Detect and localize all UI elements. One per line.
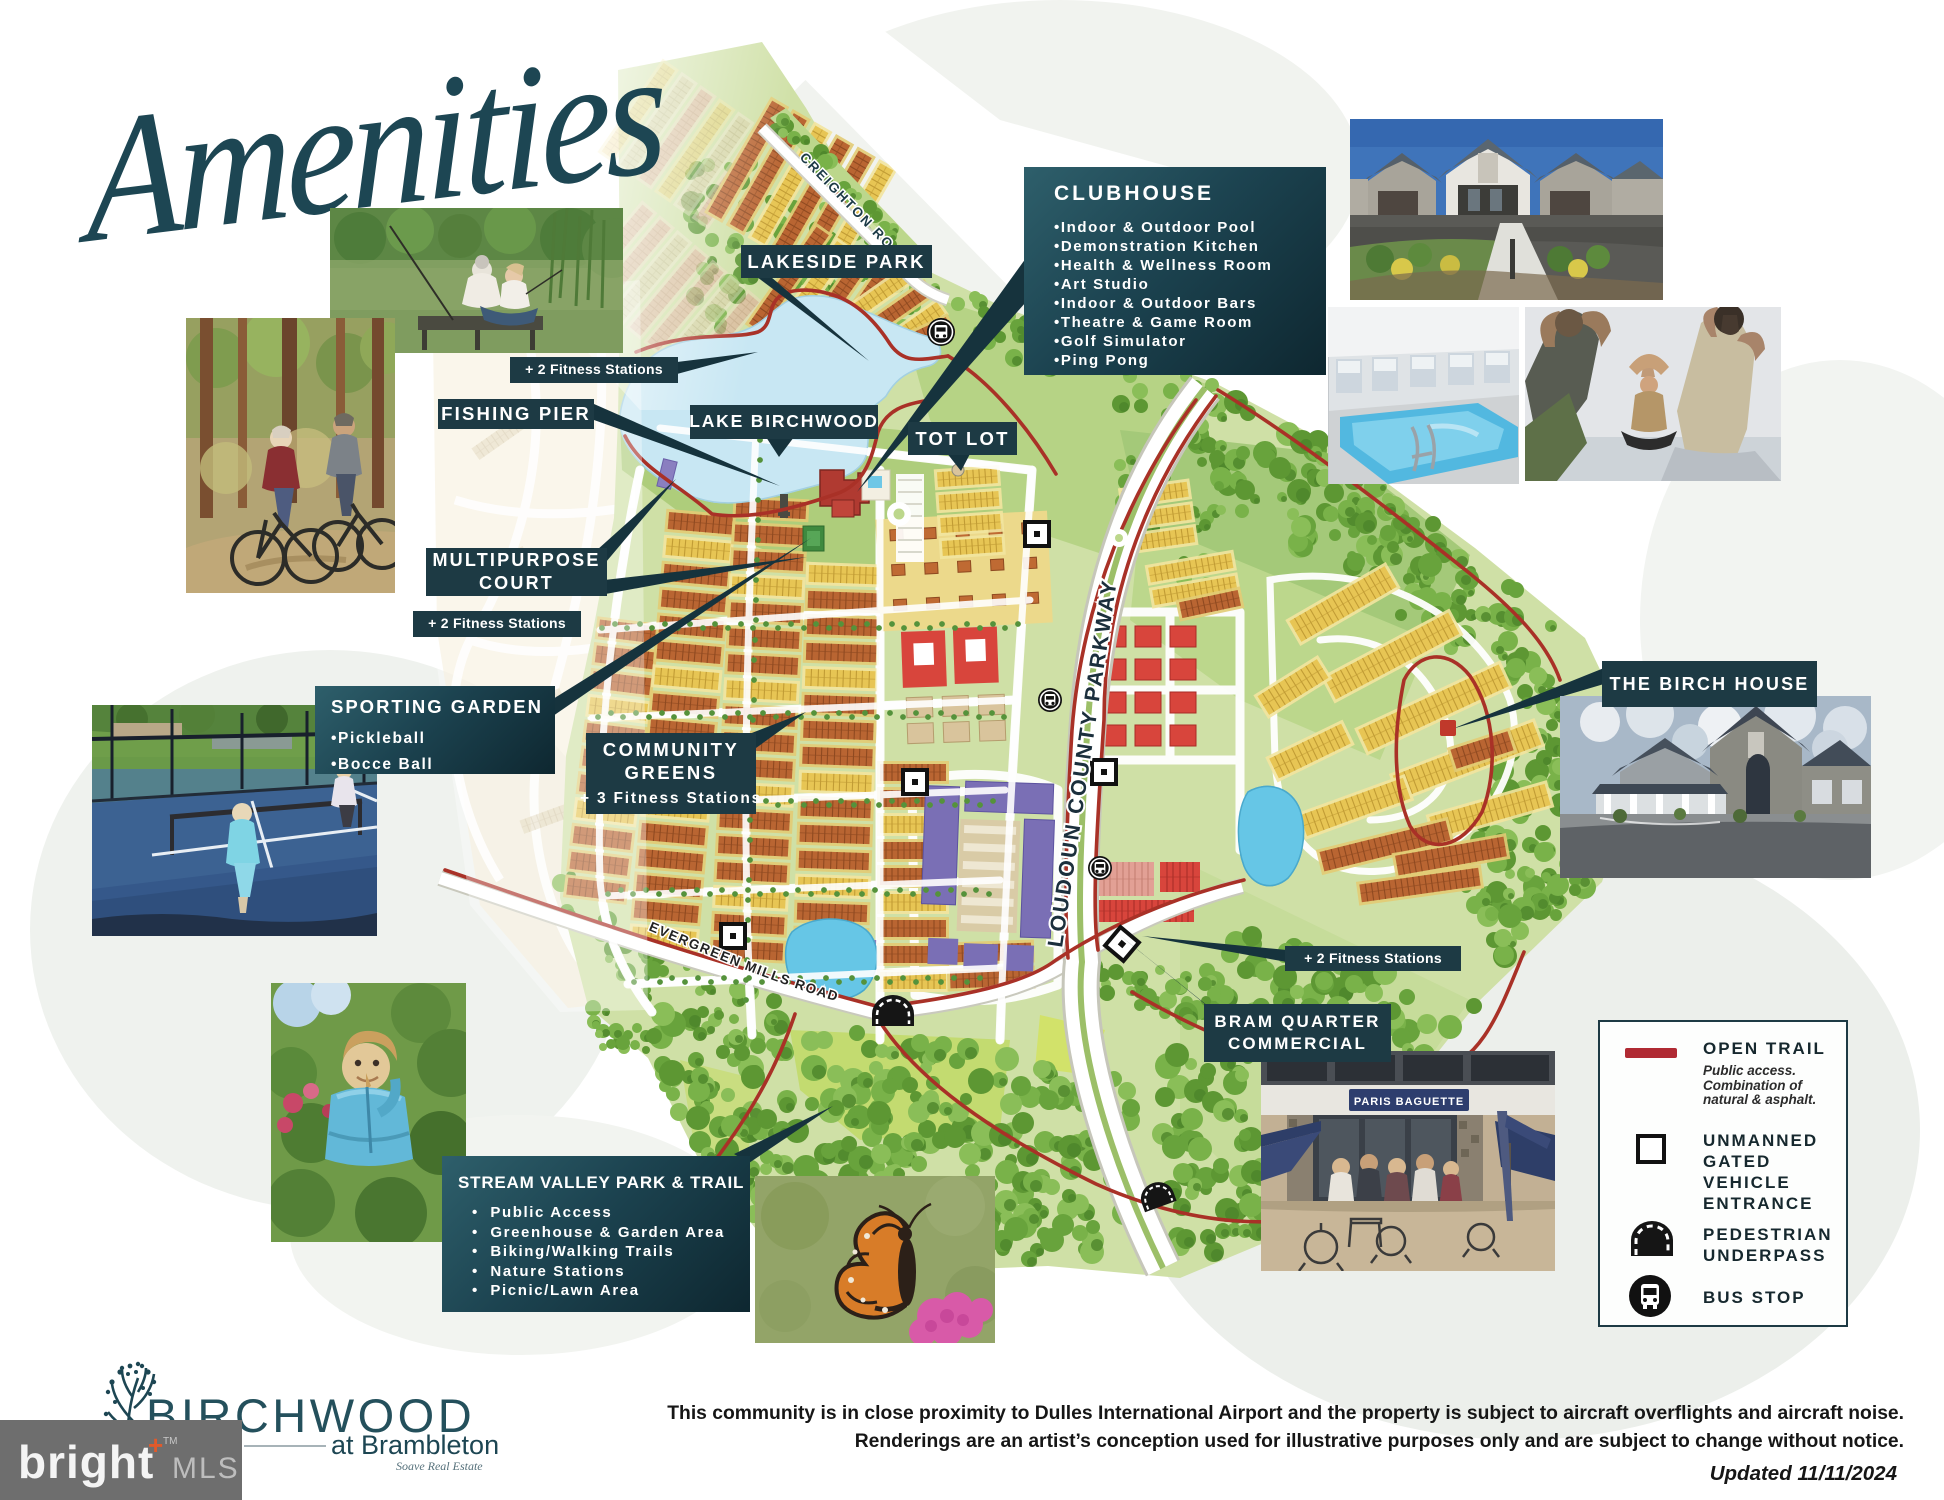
svg-text:+: + — [148, 1430, 163, 1460]
svg-text:at Brambleton: at Brambleton — [331, 1430, 499, 1460]
svg-text:bright: bright — [18, 1436, 154, 1488]
svg-text:MLS: MLS — [172, 1452, 240, 1485]
svg-text:TM: TM — [163, 1436, 177, 1447]
svg-text:PARIS BAGUETTE: PARIS BAGUETTE — [1354, 1096, 1464, 1108]
svg-text:Soave Real Estate: Soave Real Estate — [396, 1459, 483, 1473]
